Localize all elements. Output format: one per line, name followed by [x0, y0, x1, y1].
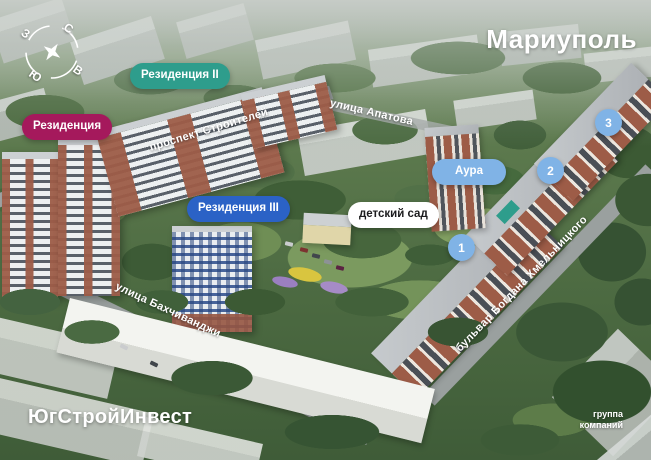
developer-tagline: группа компаний	[580, 409, 623, 432]
street-label-bakhchivandzhi: улица Бахчиванджи	[113, 281, 222, 340]
building-marker-2[interactable]: 2	[537, 157, 564, 184]
tagline-line-2: компаний	[580, 420, 623, 431]
overlay: С Ю З В Мариуполь Резиденция II Резиденц…	[0, 0, 651, 460]
masterplan-map: С Ю З В Мариуполь Резиденция II Резиденц…	[0, 0, 651, 460]
compass-icon: С Ю З В	[7, 7, 96, 96]
city-title: Мариуполь	[486, 24, 637, 55]
label-kindergarten[interactable]: детский сад	[348, 202, 439, 228]
label-residence[interactable]: Резиденция	[22, 114, 112, 140]
label-aura[interactable]: Аура	[432, 159, 506, 185]
street-label-khmelnitskogo: бульвар Богдана Хмельницкого	[454, 214, 590, 355]
street-label-apatova: улица Апатова	[329, 97, 415, 128]
compass-circle	[7, 7, 96, 96]
label-residence-3[interactable]: Резиденция III	[187, 196, 290, 222]
developer-logo: ЮгСтройИнвест	[28, 406, 192, 429]
building-marker-1[interactable]: 1	[448, 234, 475, 261]
tagline-line-1: группа	[580, 409, 623, 420]
label-residence-2[interactable]: Резиденция II	[130, 63, 230, 89]
building-marker-3[interactable]: 3	[595, 109, 622, 136]
street-label-stroiteley: проспект Строителей	[148, 106, 269, 154]
